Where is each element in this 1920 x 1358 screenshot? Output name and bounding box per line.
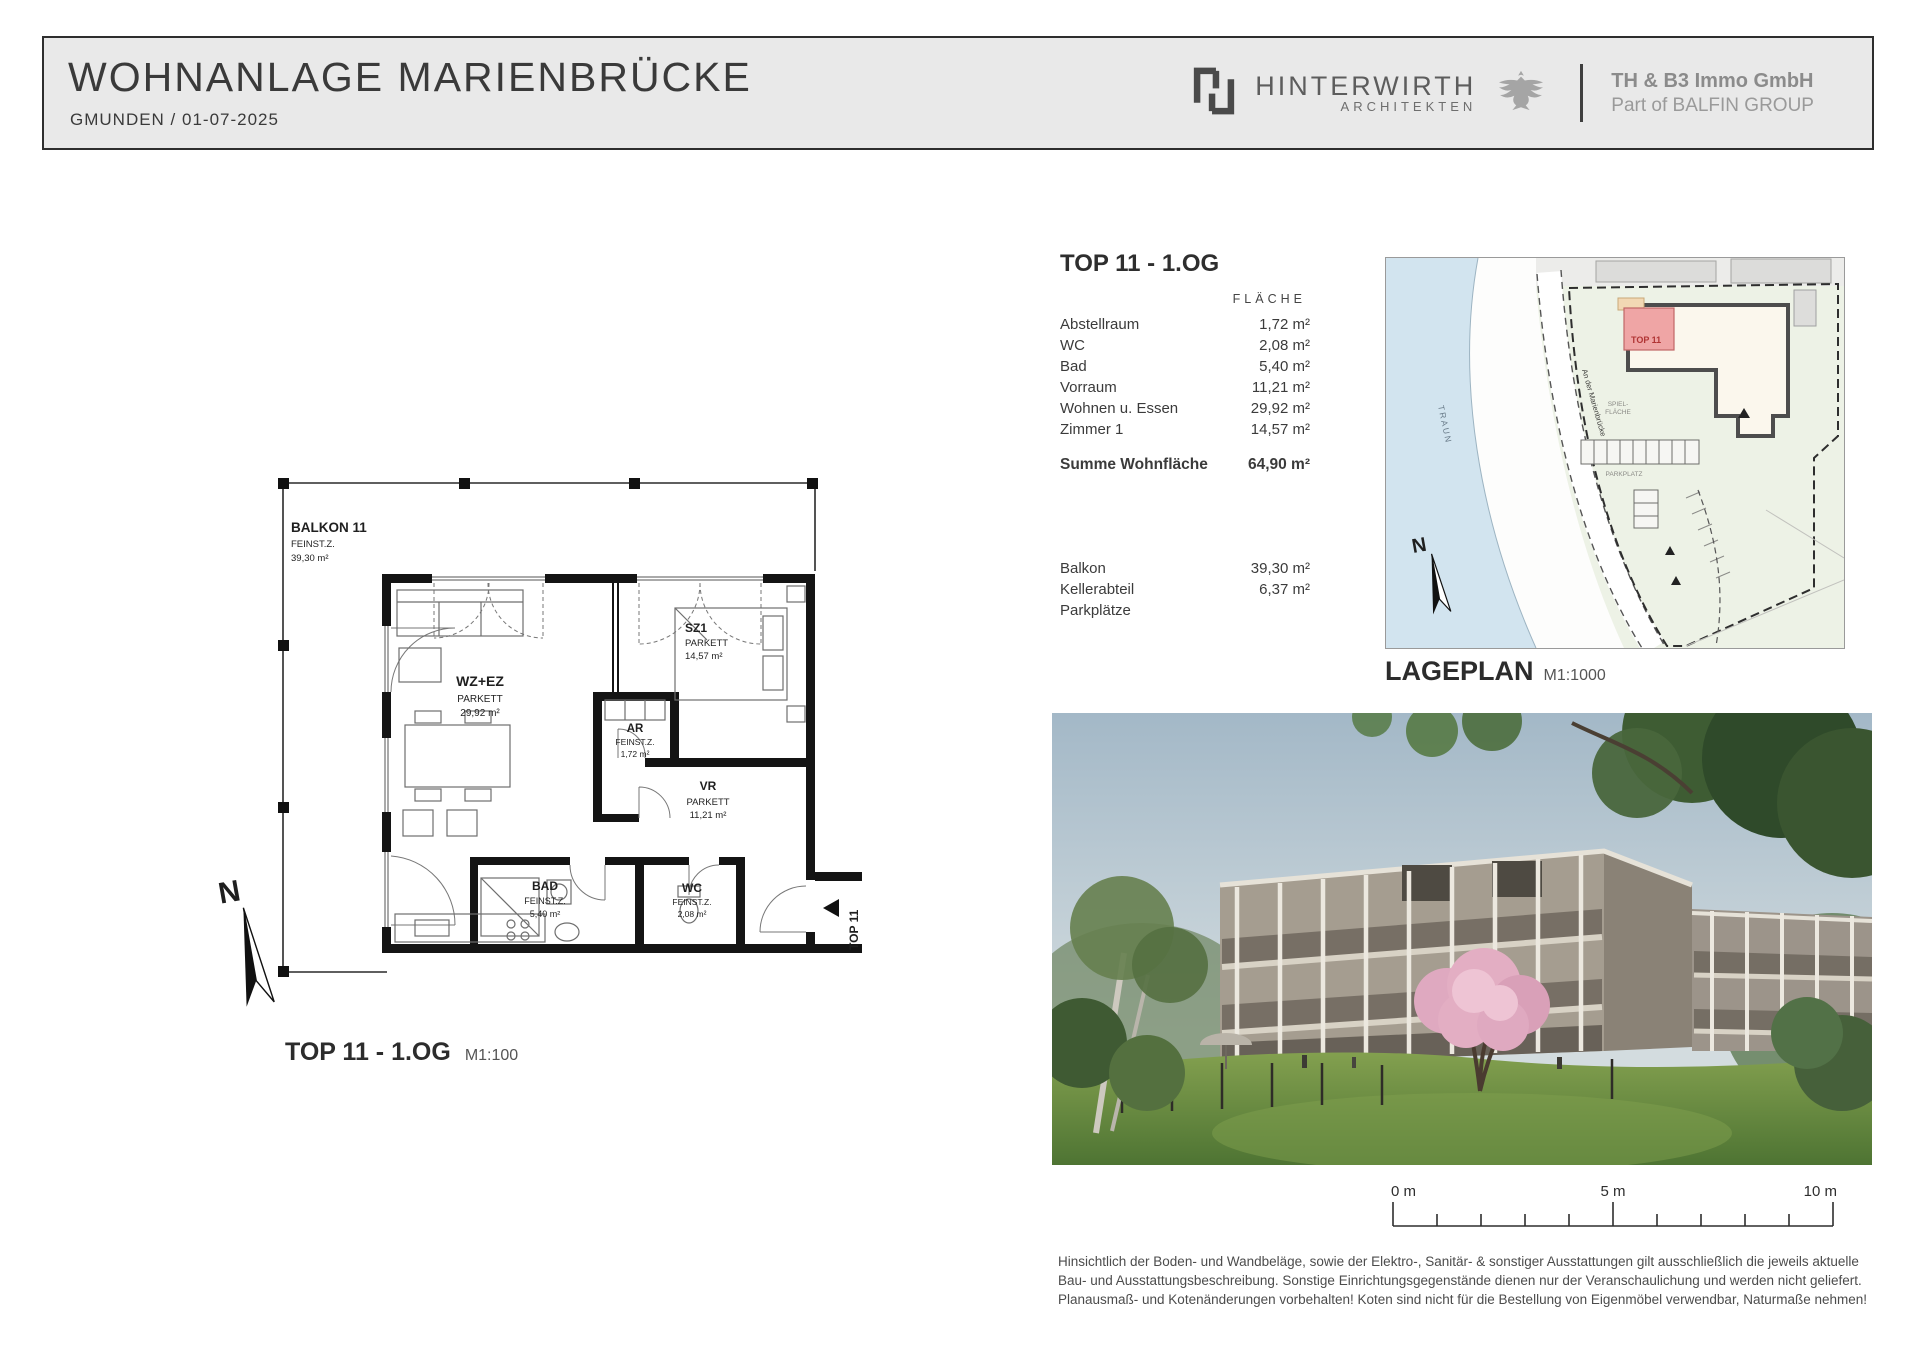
label-vr: VR (700, 779, 717, 793)
svg-text:FEINST.Z.: FEINST.Z. (672, 897, 711, 907)
play-area-label-2: FLÄCHE (1605, 408, 1631, 416)
entry-marker: TOP 11 (823, 899, 861, 950)
floor-plan-caption: TOP 11 - 1.OG M1:100 (285, 1038, 518, 1067)
table-row: Zimmer 114,57 m² (1060, 419, 1310, 440)
svg-text:11,21 m²: 11,21 m² (690, 810, 727, 821)
label-wc: WC (682, 881, 702, 895)
table-row: Kellerabteil6,37 m² (1060, 579, 1310, 600)
site-plan-caption: LAGEPLAN M1:1000 (1385, 656, 1606, 687)
site-plan-scale: M1:1000 (1544, 667, 1606, 685)
north-label: N (216, 874, 243, 910)
entry-label: TOP 11 (847, 909, 861, 950)
disclaimer-text: Hinsichtlich der Boden- und Wandbeläge, … (1058, 1252, 1876, 1309)
interior-walls (470, 583, 806, 944)
svg-text:39,30 m²: 39,30 m² (291, 553, 329, 564)
scale-mid: 5 m (1600, 1183, 1625, 1200)
scale-start: 0 m (1391, 1183, 1416, 1200)
site-plan-caption-title: LAGEPLAN (1385, 656, 1534, 687)
svg-text:PARKETT: PARKETT (685, 638, 728, 649)
label-wz: WZ+EZ (456, 673, 504, 689)
page-title: WOHNANLAGE MARIENBRÜCKE (68, 54, 752, 101)
header-divider (1580, 64, 1583, 122)
site-unit-label: TOP 11 (1631, 335, 1661, 345)
table-row: Bad5,40 m² (1060, 356, 1310, 377)
table-row: Vorraum11,21 m² (1060, 377, 1310, 398)
page-subtitle: GMUNDEN / 01-07-2025 (70, 110, 279, 130)
label-sz1: SZ1 (685, 621, 707, 635)
company-group: Part of BALFIN GROUP (1611, 94, 1814, 118)
scale-bar: 0 m 5 m 10 m (1385, 1182, 1850, 1237)
area-rows: Abstellraum1,72 m² WC2,08 m² Bad5,40 m² … (1060, 314, 1310, 440)
header-bar: WOHNANLAGE MARIENBRÜCKE GMUNDEN / 01-07-… (42, 36, 1874, 150)
table-row: Parkplätze (1060, 600, 1310, 621)
hinterwirth-logo-icon (1191, 65, 1237, 122)
disclaimer-line: Hinsichtlich der Boden- und Wandbeläge, … (1058, 1252, 1876, 1271)
building-rendering (1052, 713, 1872, 1165)
svg-text:29,92 m²: 29,92 m² (460, 708, 500, 719)
label-balkon: BALKON 11 (291, 520, 367, 535)
table-row: Wohnen u. Essen29,92 m² (1060, 398, 1310, 419)
company-block: TH & B3 Immo GmbH Part of BALFIN GROUP (1611, 69, 1814, 118)
table-row: WC2,08 m² (1060, 335, 1310, 356)
north-arrow-icon: N (216, 872, 274, 1008)
eagle-emblem-icon (1494, 68, 1548, 119)
architect-name-block: HINTERWIRTH ARCHITEKTEN (1255, 72, 1476, 114)
svg-text:FEINST.Z.: FEINST.Z. (291, 539, 335, 550)
svg-text:1,72 m²: 1,72 m² (621, 749, 650, 759)
svg-text:FEINST.Z.: FEINST.Z. (615, 737, 654, 747)
site-plan: TOP 11 SPIEL- FLÄCHE PARKPLATZ TRAUN An … (1385, 257, 1845, 649)
parking-label: PARKPLATZ (1606, 471, 1643, 478)
svg-text:5,40 m²: 5,40 m² (530, 909, 561, 919)
play-area-label-1: SPIEL- (1608, 401, 1629, 408)
svg-text:14,57 m²: 14,57 m² (685, 651, 723, 662)
disclaimer-line: Planausmaß- und Kotenänderungen vorbehal… (1058, 1290, 1876, 1309)
svg-text:2,08 m²: 2,08 m² (678, 909, 707, 919)
svg-text:PARKETT: PARKETT (457, 694, 502, 705)
floor-plan-caption-title: TOP 11 - 1.OG (285, 1038, 451, 1067)
architect-subtitle: ARCHITEKTEN (1255, 100, 1476, 114)
svg-text:PARKETT: PARKETT (686, 797, 729, 808)
table-row: Abstellraum1,72 m² (1060, 314, 1310, 335)
header-logos: HINTERWIRTH ARCHITEKTEN TH & B3 Immo Gmb… (1191, 38, 1814, 148)
disclaimer-line: Bau- und Ausstattungsbeschreibung. Sonst… (1058, 1271, 1876, 1290)
unit-area-panel: TOP 11 - 1.OG FLÄCHE Abstellraum1,72 m² … (1060, 250, 1310, 621)
floor-plan: BALKON 11 FEINST.Z. 39,30 m² WZ+EZ PARKE… (215, 380, 895, 1028)
scale-end: 10 m (1804, 1183, 1837, 1200)
extra-rows: Balkon39,30 m² Kellerabteil6,37 m² Parkp… (1060, 558, 1310, 621)
table-row: Balkon39,30 m² (1060, 558, 1310, 579)
svg-text:FEINST.Z.: FEINST.Z. (524, 896, 566, 906)
label-ar: AR (627, 723, 644, 735)
floor-plan-scale: M1:100 (465, 1047, 518, 1065)
unit-title: TOP 11 - 1.OG (1060, 250, 1310, 278)
area-column-header: FLÄCHE (1060, 292, 1310, 306)
label-bad: BAD (532, 879, 558, 893)
company-name: TH & B3 Immo GmbH (1611, 69, 1814, 94)
architect-name: HINTERWIRTH (1255, 72, 1476, 100)
total-row: Summe Wohnfläche 64,90 m² (1060, 456, 1310, 474)
